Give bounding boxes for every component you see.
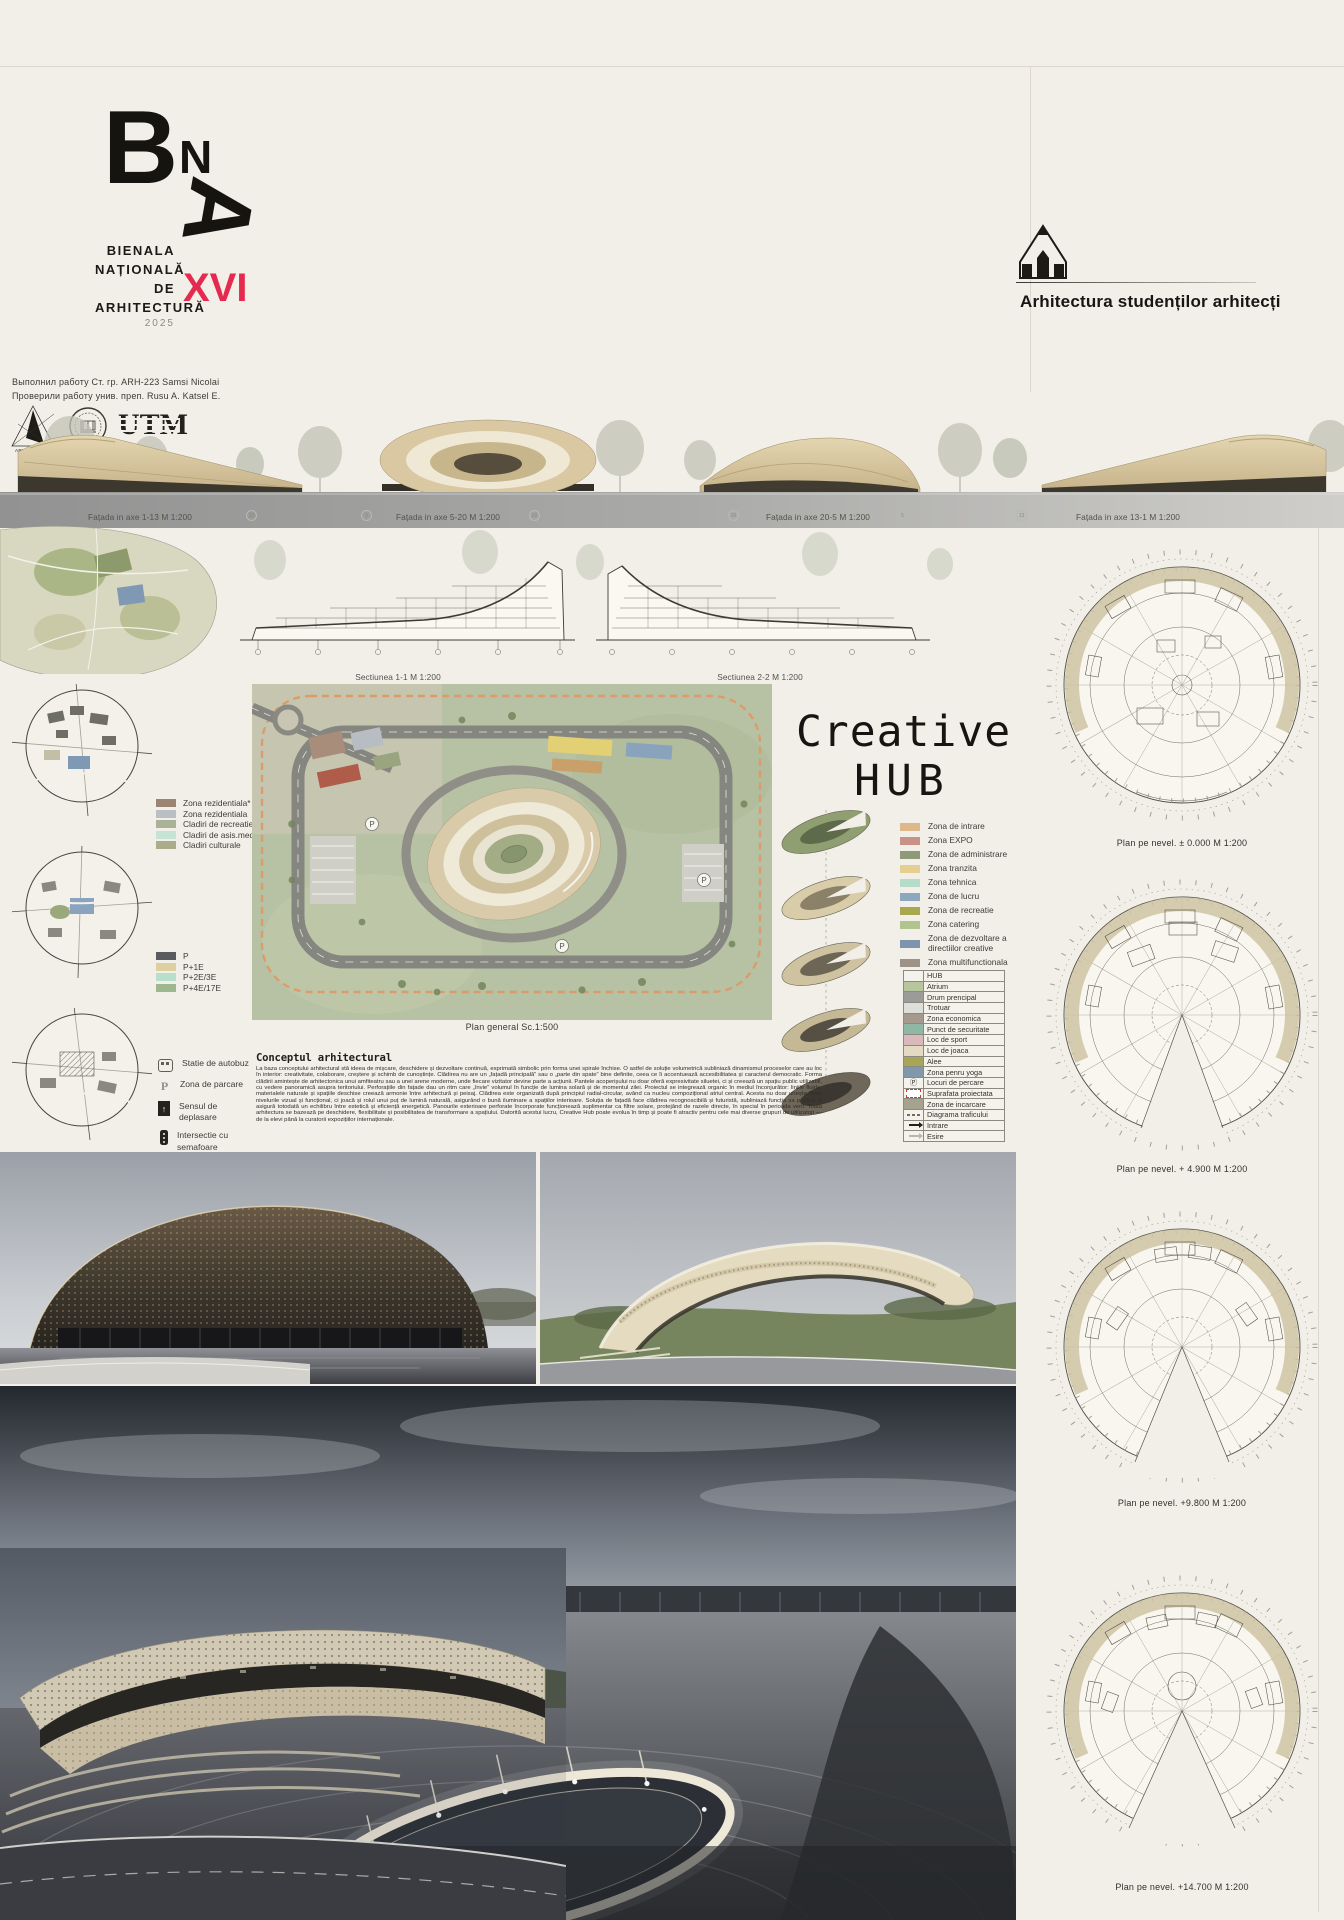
section-drawing-2: [596, 566, 930, 655]
table-row: Suprafata proiectata: [904, 1088, 1004, 1099]
color-swatch: [900, 823, 920, 832]
bna-letter-b: B: [103, 96, 178, 200]
legend-zones: Zona de intrare Zona EXPO Zona de admini…: [900, 822, 1030, 972]
render-building-dusk: [0, 1548, 566, 1920]
section-drawing-1: [240, 562, 575, 655]
section-label-2: Sectiunea 2-2 M 1:200: [650, 672, 870, 682]
color-swatch: [900, 959, 920, 968]
program-badge: Arhitectura studenților arhitecți: [1014, 222, 1314, 318]
legend-mobility: Statie de autobuz P Zona de parcare ↑ Se…: [158, 1058, 256, 1160]
color-swatch: [904, 1014, 923, 1024]
axis-marker: 13: [246, 510, 257, 521]
svg-text:P: P: [701, 876, 706, 885]
axis-marker: 5: [361, 510, 372, 521]
master-plan: P P P: [252, 684, 772, 1020]
bna-name-lines: BIENALA NAȚIONALĂ DE ARHITECTURĂ: [95, 242, 175, 317]
color-swatch: [156, 963, 176, 971]
direction-arrow-icon: ↑: [158, 1101, 170, 1116]
floor-plan-caption-2: Plan pe nevel. + 4.900 M 1:200: [1032, 1164, 1332, 1174]
legend-item: Zona de recreatie: [900, 906, 1030, 916]
color-swatch: [900, 837, 920, 846]
concept-body: La baza conceptului arhitectural stă ide…: [256, 1066, 822, 1123]
color-swatch: [900, 879, 920, 888]
parking-circle-icon: Ⓟ: [910, 1077, 918, 1088]
color-swatch: [904, 1057, 923, 1067]
svg-text:P: P: [559, 942, 564, 951]
legend-item: Zona rezidentiala*: [156, 799, 257, 807]
concept-block: Conceptul arhitectural La baza conceptul…: [256, 1052, 822, 1123]
axis-marker: 13: [1016, 510, 1027, 521]
color-swatch: [900, 851, 920, 860]
legend-item: Zona rezidentiala: [156, 810, 257, 818]
sections-strip: [0, 522, 1020, 674]
floor-plan-caption-1: Plan pe nevel. ± 0.000 M 1:200: [1032, 838, 1332, 848]
table-row: Zona economica: [904, 1013, 1004, 1024]
legend-item: Cladiri de asis.med.: [156, 831, 257, 839]
color-swatch: [904, 1046, 923, 1056]
legend-item: Zona de lucru: [900, 892, 1030, 902]
color-swatch: [156, 831, 176, 839]
color-swatch: [900, 907, 920, 916]
legend-item: Statie de autobuz: [158, 1058, 256, 1072]
floor-plan-level-1: [1037, 870, 1327, 1160]
bna-edition: XVI: [183, 266, 247, 311]
legend-item: Zona EXPO: [900, 836, 1030, 846]
legend-item: Cladiri culturale: [156, 841, 257, 849]
color-swatch: [156, 841, 176, 849]
table-row: Esire: [904, 1130, 1004, 1141]
legend-item: Zona catering: [900, 920, 1030, 930]
color-swatch: [904, 1003, 923, 1013]
exit-arrow-icon: [909, 1135, 919, 1137]
floor-plan-level-0: [1037, 540, 1327, 830]
legend-item: Zona de administrare: [900, 850, 1030, 860]
table-row: ⓅLocuri de percare: [904, 1077, 1004, 1088]
color-swatch: [156, 952, 176, 960]
color-swatch: [156, 810, 176, 818]
table-row: Zona penru yoga: [904, 1066, 1004, 1077]
legend-item: P: [156, 952, 221, 960]
color-swatch: [156, 799, 176, 807]
facade-building-3: [700, 438, 920, 492]
bna-logo: B N A BIENALA NAȚIONALĂ DE ARHITECTURĂ 2…: [95, 96, 335, 336]
facade-label-3: Fațada in axe 20-5 M 1:200: [708, 512, 928, 522]
site-analysis-circle-1: [12, 684, 152, 816]
project-title: Creative HUB: [796, 708, 1008, 806]
floor-plan-level-3: [1037, 1566, 1327, 1856]
legend-item: Zona tranzita: [900, 864, 1030, 874]
floor-plan-level-2: [1037, 1202, 1327, 1492]
legend-heights: P P+1E P+2E/3E P+4E/17E: [156, 952, 221, 994]
program-label: Arhitectura studenților arhitecți: [1020, 292, 1310, 312]
color-swatch: [904, 971, 923, 981]
badge-underline: [1016, 282, 1256, 283]
entry-arrow-icon: [909, 1124, 919, 1126]
project-title-line2: HUB: [796, 757, 1008, 806]
top-rule: [0, 66, 1344, 67]
table-row: Atrium: [904, 981, 1004, 992]
table-row: Loc de sport: [904, 1034, 1004, 1045]
table-row: Punct de securitate: [904, 1023, 1004, 1034]
traffic-light-icon: [160, 1130, 168, 1145]
color-swatch: [900, 940, 920, 949]
bus-icon: [158, 1059, 173, 1072]
color-swatch: [900, 921, 920, 930]
color-swatch: [904, 1067, 923, 1077]
legend-item: Zona tehnica: [900, 878, 1030, 888]
dash-line-icon: [907, 1114, 920, 1116]
table-row: Drum prencipal: [904, 991, 1004, 1002]
floor-plan-caption-4: Plan pe nevel. +14.700 M 1:200: [1032, 1882, 1332, 1892]
legend-item: P Zona de parcare: [158, 1079, 256, 1094]
color-swatch: [900, 865, 920, 874]
dashed-outline-icon: [906, 1089, 921, 1098]
poster-canvas: { "bna": { "letter_b": "B", "letter_n": …: [0, 0, 1344, 1920]
legend-item: Zona de intrare: [900, 822, 1030, 832]
legend-item: Intersectie cu semafoare: [158, 1130, 256, 1152]
axis-marker: 5: [897, 510, 908, 521]
parking-icon: P: [158, 1079, 171, 1094]
concept-heading: Conceptul arhitectural: [256, 1052, 822, 1064]
section-trees: [254, 530, 953, 580]
render-exterior-spiral: [540, 1152, 1016, 1384]
axis-marker: 20: [728, 510, 739, 521]
table-row: HUB: [904, 971, 1004, 981]
city-map: [0, 526, 217, 674]
legend-item: Zona de dezvoltare a directiilor creativ…: [900, 934, 1030, 953]
floor-plan-caption-3: Plan pe nevel. +9.800 M 1:200: [1032, 1498, 1332, 1508]
legend-item: P+1E: [156, 963, 221, 971]
render-exterior-dome: [0, 1152, 536, 1384]
facade-label-1: Fațada in axe 1-13 M 1:200: [30, 512, 250, 522]
color-swatch: [904, 982, 923, 992]
bna-letter-a: A: [167, 171, 269, 252]
bna-year: 2025: [95, 318, 175, 329]
project-title-line1: Creative: [796, 708, 1008, 757]
axis-marker: 20: [529, 510, 540, 521]
svg-text:P: P: [369, 820, 374, 829]
legend-hub-table: HUB Atrium Drum prencipal Trotuar Zona e…: [903, 970, 1005, 1142]
legend-item: ↑ Sensul de deplasare: [158, 1101, 256, 1123]
color-swatch: [904, 992, 923, 1002]
color-swatch: [904, 1035, 923, 1045]
facade-building-4: [1042, 435, 1326, 492]
facade-label-4: Fațada in axe 13-1 M 1:200: [1018, 512, 1238, 522]
table-row: Alee: [904, 1056, 1004, 1067]
legend-item: P+2E/3E: [156, 973, 221, 981]
table-row: Intrare: [904, 1120, 1004, 1131]
color-swatch: [156, 973, 176, 981]
legend-item: Cladiri de recreatie: [156, 820, 257, 828]
legend-context: Zona rezidentiala* Zona rezidentiala Cla…: [156, 799, 257, 852]
master-plan-caption: Plan general Sc.1:500: [392, 1022, 632, 1032]
color-swatch: [904, 1099, 923, 1109]
facade-strip: [0, 388, 1344, 528]
color-swatch: [156, 984, 176, 992]
pencil-icon: [1016, 222, 1070, 280]
legend-item: P+4E/17E: [156, 984, 221, 992]
site-analysis-circle-2: [12, 846, 152, 978]
table-row: Loc de joaca: [904, 1045, 1004, 1056]
facade-building-2: [380, 420, 596, 500]
table-row: Zona de incarcare: [904, 1098, 1004, 1109]
color-swatch: [904, 1024, 923, 1034]
table-row: Diagrama traficului: [904, 1109, 1004, 1120]
site-analysis-circle-3: [12, 1008, 152, 1140]
table-row: Trotuar: [904, 1002, 1004, 1013]
color-swatch: [156, 820, 176, 828]
section-label-1: Sectiunea 1-1 M 1:200: [288, 672, 508, 682]
legend-item: Zona multifunctionala: [900, 958, 1030, 968]
color-swatch: [900, 893, 920, 902]
